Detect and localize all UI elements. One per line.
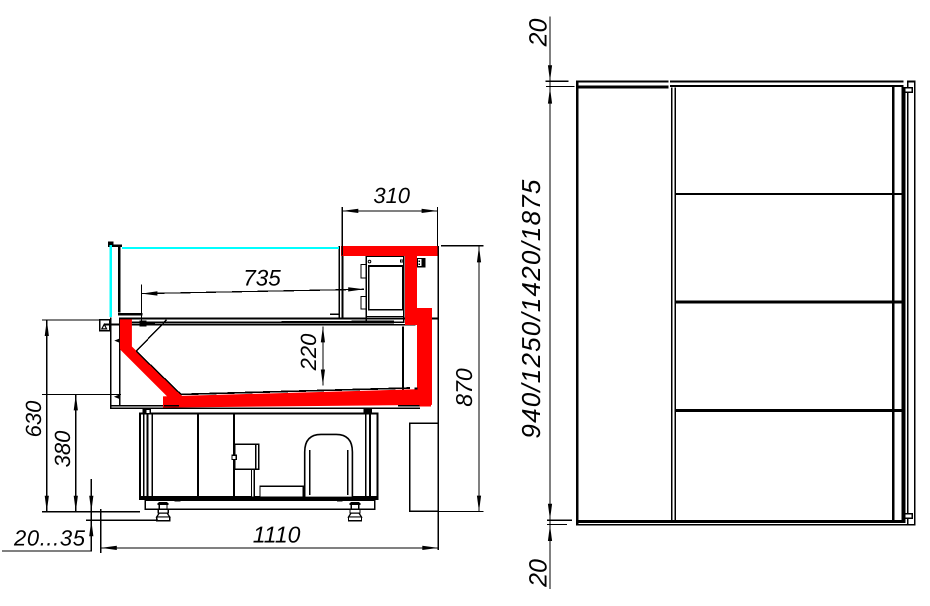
svg-text:870: 870 xyxy=(451,368,477,407)
svg-text:20: 20 xyxy=(524,19,552,48)
svg-text:20: 20 xyxy=(524,559,552,588)
svg-text:20...35: 20...35 xyxy=(13,526,86,551)
svg-text:380: 380 xyxy=(50,430,75,467)
svg-text:735: 735 xyxy=(243,266,281,291)
svg-text:630: 630 xyxy=(21,400,46,437)
svg-text:1110: 1110 xyxy=(253,522,301,548)
svg-text:310: 310 xyxy=(373,183,410,208)
svg-text:220: 220 xyxy=(296,333,321,371)
svg-text:940/1250/1420/1875: 940/1250/1420/1875 xyxy=(516,178,546,438)
